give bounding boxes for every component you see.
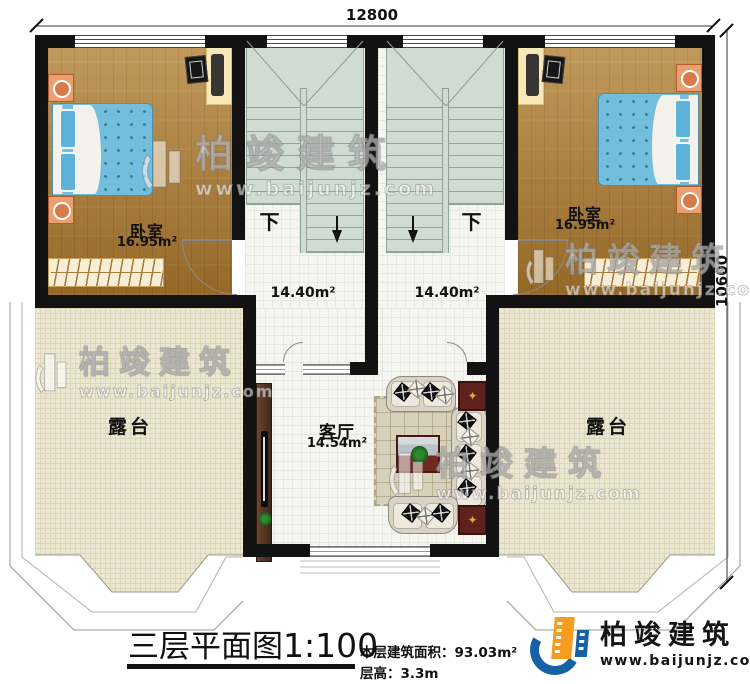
plan-title-text: 三层平面图 bbox=[128, 629, 283, 665]
nightstand-left-bottom bbox=[48, 196, 74, 224]
stair-right-down-arrow-icon bbox=[412, 216, 414, 230]
coffee-table bbox=[396, 435, 440, 473]
wall-left bbox=[35, 35, 48, 308]
stair-left-down-arrow-icon bbox=[336, 216, 338, 230]
pillow-icon bbox=[674, 142, 692, 182]
tv-icon bbox=[261, 431, 268, 507]
bed-left-sheet bbox=[73, 105, 101, 194]
wall-living-right bbox=[486, 295, 499, 557]
wardrobe-left bbox=[48, 258, 164, 287]
stair-left-area: 14.40m² bbox=[253, 285, 353, 301]
brand-block: 柏竣建筑 www.baijunjz.com bbox=[600, 622, 750, 668]
wall-living-top-center bbox=[350, 362, 378, 375]
wall-living-bottom-left bbox=[243, 544, 310, 557]
bed-left bbox=[52, 103, 153, 196]
terrace-left-floor bbox=[35, 308, 243, 600]
floor-area-row: 本层建筑面积：93.03m² bbox=[360, 641, 517, 661]
stair-right-flight-b bbox=[448, 107, 504, 205]
bed-right bbox=[598, 93, 699, 186]
window-stair-right bbox=[403, 35, 483, 48]
floor-height-value: 3.3m bbox=[401, 666, 439, 682]
door-leaf-bedroom-right bbox=[518, 239, 568, 241]
floor-height-label: 层高： bbox=[360, 666, 401, 682]
window-stair-left bbox=[267, 35, 347, 48]
brand-logo-icon bbox=[530, 615, 596, 681]
dimension-right: 10600 bbox=[697, 256, 747, 306]
pillow-icon bbox=[674, 99, 692, 139]
door-arc-bedroom-right bbox=[513, 240, 568, 295]
plan-title: 三层平面图1:100 bbox=[128, 621, 378, 666]
living-room-area: 14.54m² bbox=[292, 436, 382, 451]
logo-windows bbox=[578, 633, 585, 653]
terrace-right-label: 露台 bbox=[573, 412, 643, 439]
nightstand-right-bottom bbox=[676, 186, 702, 214]
floor-height-row: 层高：3.3m bbox=[360, 662, 438, 682]
side-table-bottom: ✦ bbox=[458, 505, 487, 535]
pillow-icon bbox=[59, 109, 77, 149]
computer-icon bbox=[542, 55, 566, 84]
nightstand-left-top bbox=[48, 74, 74, 102]
wall-bedroom-right-inner bbox=[505, 35, 518, 240]
logo-building-orange bbox=[551, 617, 575, 659]
stair-right-down-arrow-icon bbox=[408, 230, 418, 243]
wall-bedroom-right-bottom bbox=[494, 295, 715, 308]
plant-icon bbox=[411, 446, 428, 463]
wall-bedroom-left-inner bbox=[232, 35, 245, 240]
window-living-top-b bbox=[303, 364, 350, 375]
bed-right-blanket-pattern bbox=[601, 95, 654, 184]
wall-stair-divider bbox=[365, 35, 378, 375]
window-bedroom-right bbox=[545, 35, 675, 48]
shelf-items-right bbox=[526, 54, 539, 96]
window-bedroom-left bbox=[75, 35, 205, 48]
stair-right-area: 14.40m² bbox=[397, 285, 497, 301]
brand-name: 柏竣建筑 bbox=[600, 622, 750, 649]
floor-plan-canvas: ✦ ✦ bbox=[0, 0, 750, 684]
wall-bedroom-left-bottom bbox=[35, 295, 256, 308]
shelf-items-left bbox=[211, 54, 224, 96]
side-table-top: ✦ bbox=[458, 381, 487, 411]
stair-right-rail bbox=[442, 88, 449, 253]
plant-icon bbox=[259, 512, 271, 526]
wall-living-left bbox=[243, 295, 256, 557]
logo-windows bbox=[555, 622, 563, 654]
pillow-icon bbox=[59, 152, 77, 192]
stair-left-down-arrow-icon bbox=[332, 230, 342, 243]
terrace-right-floor bbox=[499, 308, 715, 600]
wall-living-bottom-right bbox=[430, 544, 499, 557]
bedroom-left-area: 16.95m² bbox=[92, 235, 202, 250]
wall-living-top-right bbox=[467, 362, 499, 375]
terrace-left-label: 露台 bbox=[95, 412, 165, 439]
floor-area-label: 本层建筑面积： bbox=[360, 645, 455, 661]
bed-left-blanket-pattern bbox=[99, 105, 152, 194]
window-living-bottom bbox=[310, 546, 430, 557]
nightstand-right-top bbox=[676, 64, 702, 92]
stair-left-down-label: 下 bbox=[256, 206, 284, 235]
door-arc-living-right bbox=[447, 342, 467, 362]
door-arc-living-left bbox=[283, 342, 303, 362]
dimension-top: 12800 bbox=[340, 6, 404, 24]
wardrobe-right bbox=[584, 258, 700, 287]
logo-building-blue bbox=[575, 630, 589, 657]
computer-icon bbox=[185, 55, 209, 84]
tv-cabinet bbox=[256, 383, 272, 562]
floor-area-value: 93.03m² bbox=[455, 645, 518, 661]
stair-right-down-label: 下 bbox=[458, 206, 486, 235]
stair-left-rail bbox=[300, 88, 307, 253]
window-living-top-a bbox=[256, 364, 285, 375]
brand-website: www.baijunjz.com bbox=[600, 654, 750, 668]
bedroom-right-area: 16.95m² bbox=[530, 218, 640, 233]
title-underline bbox=[127, 664, 355, 669]
stair-left-flight-a bbox=[246, 107, 302, 205]
